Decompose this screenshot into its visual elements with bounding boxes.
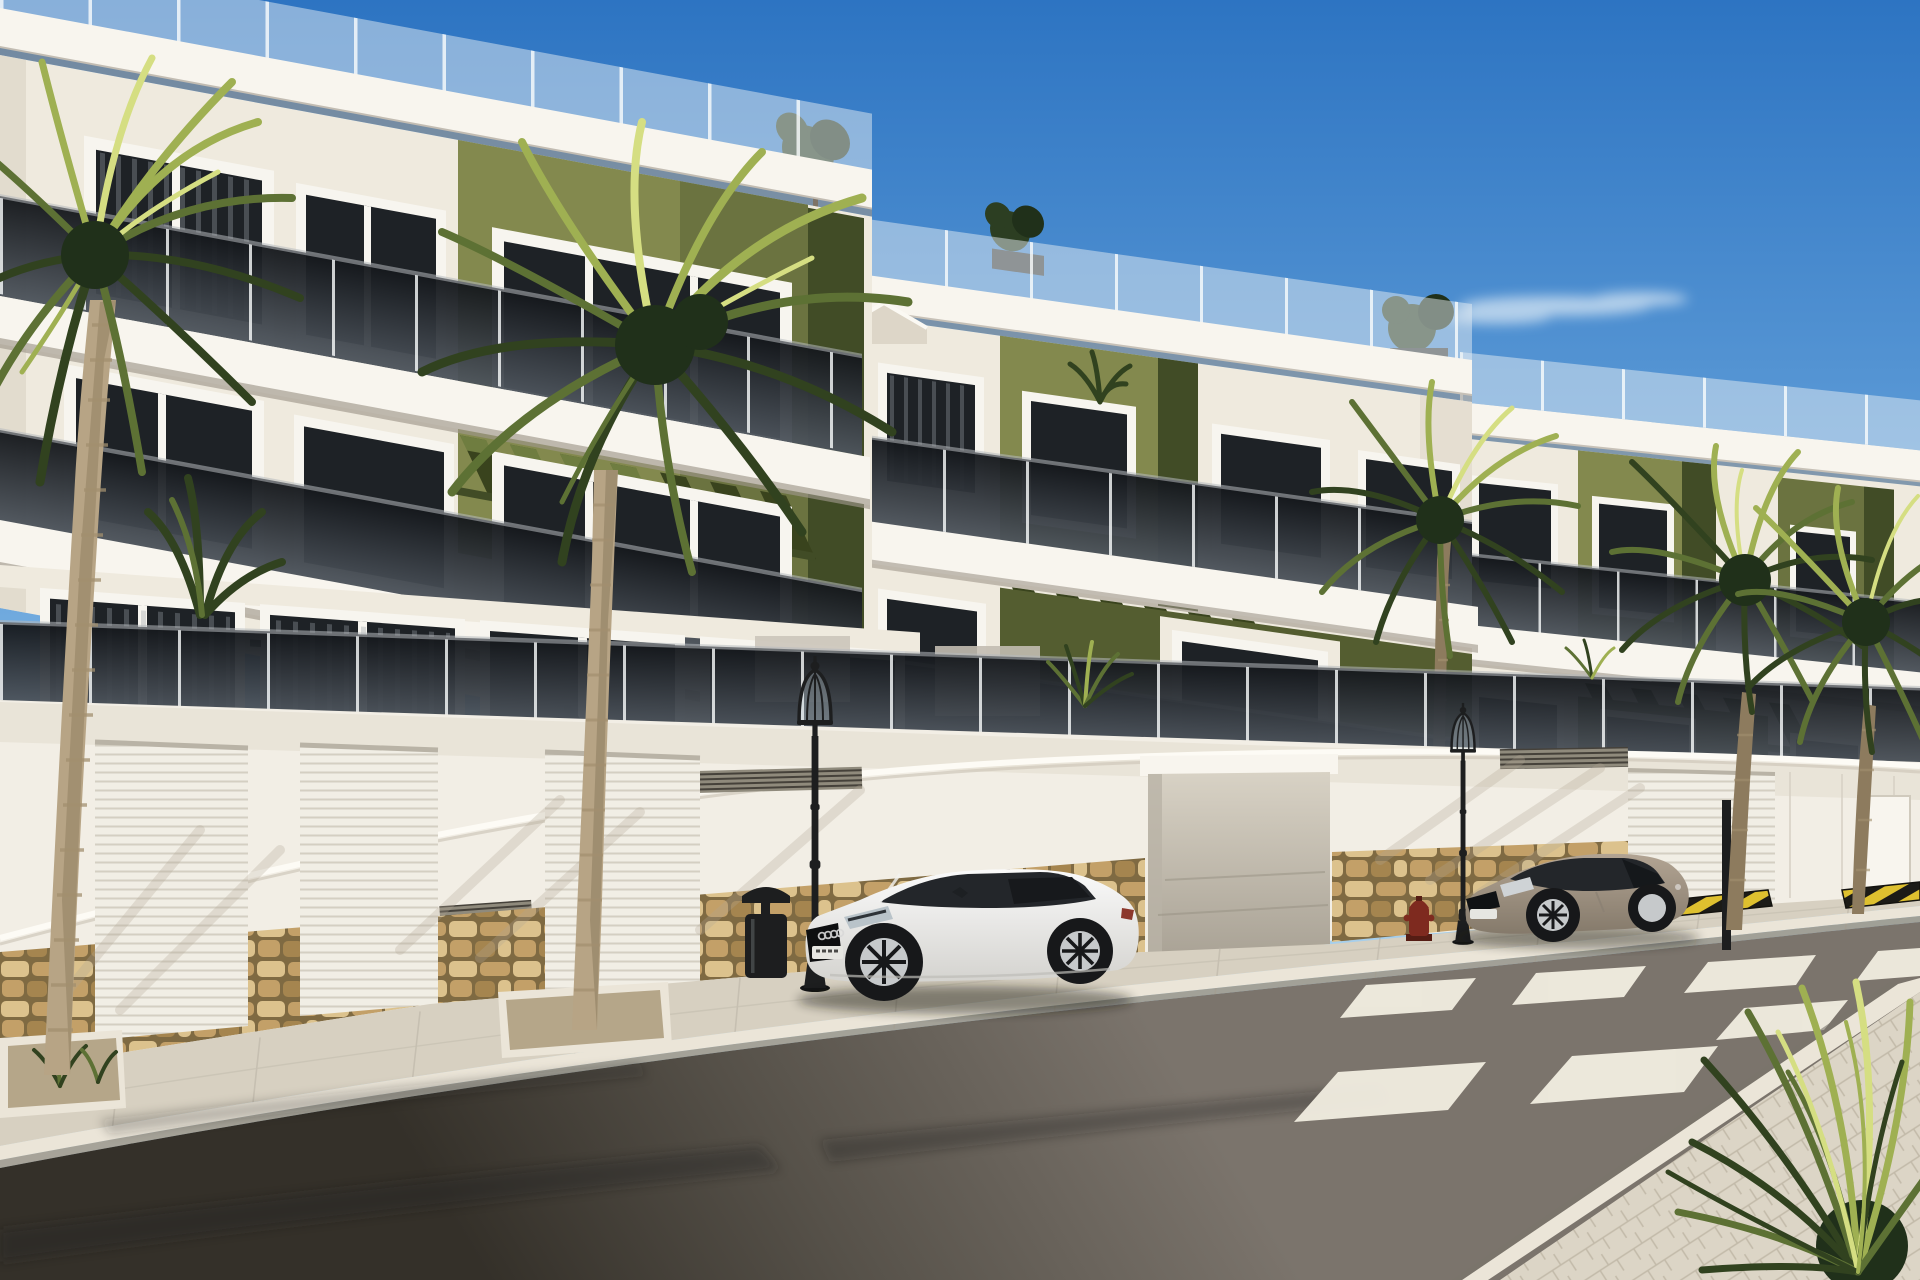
garage-door-1 — [95, 742, 248, 1040]
scene-illustration — [0, 0, 1920, 1280]
driveway-ramp — [1140, 754, 1338, 958]
render-canvas: Sunny 3D architectural rendering of a mo… — [0, 0, 1920, 1280]
garage-door-2 — [300, 745, 438, 1016]
litter-bin — [742, 887, 790, 978]
